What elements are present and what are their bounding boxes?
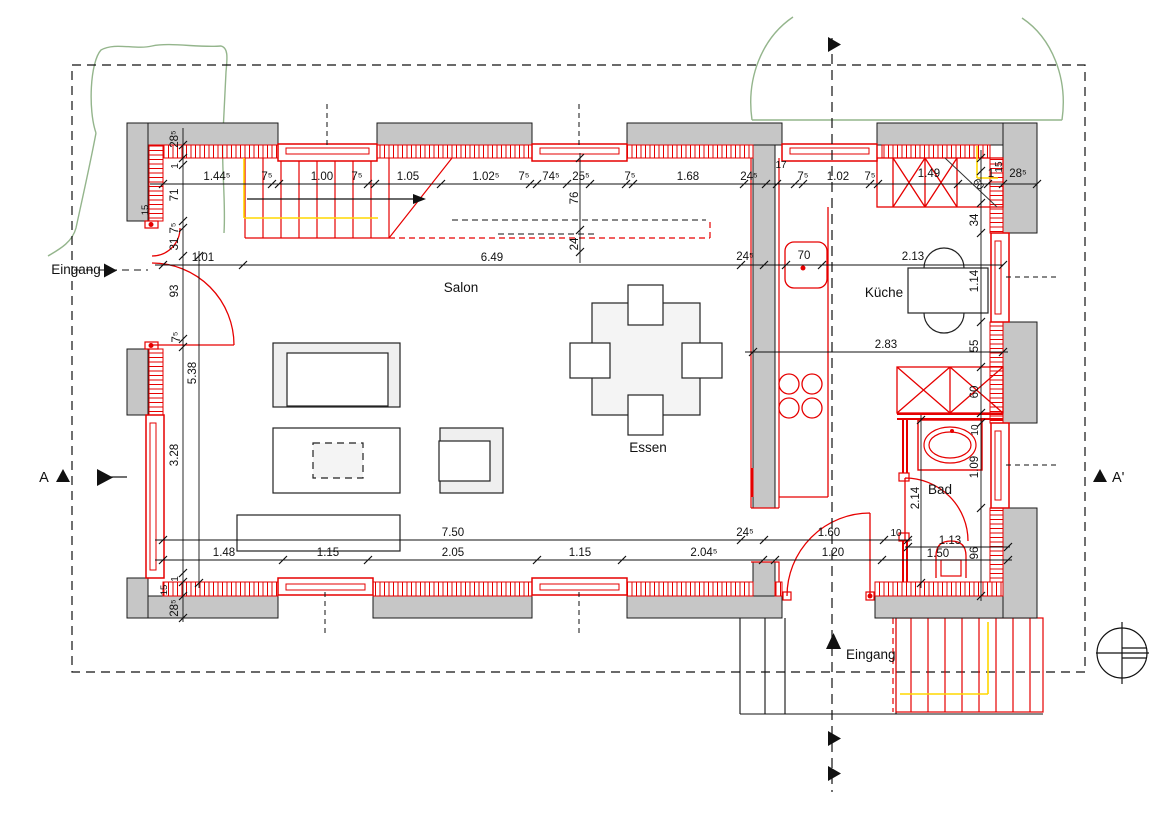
dimension-label: 24⁵: [736, 527, 754, 539]
dining-chair: [628, 285, 663, 325]
stair-handrail: [900, 622, 988, 694]
dimension-label: 1.13: [939, 535, 961, 547]
dimension-label: 76: [569, 192, 581, 205]
dimension-label: 7⁵: [261, 171, 272, 183]
dimension-label: 7⁵: [171, 331, 183, 342]
entrance-arrow-left: [104, 264, 117, 278]
dimension-label: 1.20: [822, 547, 844, 559]
canopy-arc: [751, 17, 1063, 120]
dimension-label: 6.49: [481, 252, 503, 264]
dimension-label: 31: [169, 238, 181, 251]
dimension-label: 1.15: [317, 547, 339, 559]
dimension-label: 1.05: [397, 171, 419, 183]
dimension-label: 1.44⁵: [203, 171, 230, 183]
section-label: A': [1112, 470, 1125, 486]
partition-pier: [753, 145, 775, 508]
dimension-label: 2.04⁵: [690, 547, 717, 559]
dimension-label: 60: [970, 177, 986, 193]
dimension-label: 17: [775, 160, 787, 171]
dimension-label: 34: [969, 213, 981, 226]
section-arrow-bottom: [828, 731, 841, 746]
dimension-label: 10: [890, 528, 902, 539]
room-label: Küche: [865, 285, 903, 300]
window: [782, 144, 877, 161]
dimension-label: 60: [969, 386, 981, 399]
dimension-label: 55: [969, 340, 981, 353]
dining-chair: [682, 343, 722, 378]
floor-plan-page: 1.44⁵7⁵1.007⁵1.051.02⁵7⁵74⁵25⁵7⁵1.6824⁵1…: [0, 0, 1169, 826]
dimension-label: 2.14: [910, 486, 922, 509]
dimension-label: 25⁵: [572, 171, 590, 183]
dimension-label: 2.13: [902, 251, 924, 263]
dimension-label: 10: [970, 424, 981, 436]
section-arrow-left: [97, 469, 113, 486]
staircase: [244, 158, 710, 238]
orientation-symbol: [1096, 622, 1149, 684]
section-arrow-top: [828, 37, 841, 52]
floor-plan-canvas: 1.44⁵7⁵1.007⁵1.051.02⁵7⁵74⁵25⁵7⁵1.6824⁵1…: [0, 0, 1169, 826]
dimension-label: 93: [169, 285, 181, 298]
entrance-label: Eingang: [846, 647, 896, 662]
dimension-label: 28⁵: [169, 130, 181, 148]
dimension-label: 24: [569, 237, 581, 250]
room-label: Bad: [928, 482, 952, 497]
window: [146, 415, 164, 578]
dimension-label: 71: [169, 189, 181, 202]
dimension-label: 1.68: [677, 171, 699, 183]
dimension-label: 1.00: [311, 171, 333, 183]
dining-chair: [628, 395, 663, 435]
dimension-label: 1.02⁵: [472, 171, 499, 183]
dimension-label: 70: [798, 250, 811, 262]
room-label: Salon: [444, 280, 479, 295]
dimension-label: 1.02: [827, 171, 849, 183]
section-label: A: [39, 470, 49, 486]
dimension-label: 2.83: [875, 339, 897, 351]
cooktop-burner: [802, 374, 822, 394]
dimension-label: 74⁵: [542, 171, 560, 183]
dimension-label: 7⁵: [169, 222, 181, 233]
dimension-label: 1.60: [818, 527, 840, 539]
dimension-label: 5.38: [187, 362, 199, 384]
window: [278, 144, 377, 161]
cooktop-burner: [779, 374, 799, 394]
dimension-label: 1.50: [927, 548, 949, 560]
dimension-label: 7⁵: [797, 171, 808, 183]
room-label: Essen: [629, 440, 667, 455]
dimension-label: 1.14: [969, 269, 981, 292]
dimension-label: 15: [140, 205, 151, 216]
cooktop-burner: [802, 398, 822, 418]
sideboard: [237, 515, 400, 551]
dimension-label: 1.09: [969, 456, 981, 478]
dimension-label: 15: [994, 161, 1005, 173]
cooktop-burner: [779, 398, 799, 418]
dimension-label: 24⁵: [740, 171, 758, 183]
exterior-steps: [740, 618, 1043, 714]
section-arrow-bottom: [828, 766, 841, 781]
salon-furniture: [237, 343, 503, 551]
dimension-label: 7.50: [442, 527, 464, 539]
dimension-label: 1.01: [192, 252, 214, 264]
hedge-outline: [91, 45, 227, 133]
dimension-label: 28⁵: [169, 599, 181, 617]
dining-chair: [570, 343, 610, 378]
dimension-label: 15: [159, 585, 170, 596]
dimension-label: 7⁵: [351, 171, 362, 183]
dimension-label: 1.48: [213, 547, 235, 559]
dimension-label: 1: [170, 163, 181, 169]
dimension-label: 28⁵: [1009, 168, 1027, 180]
entrance-label: Eingang: [51, 262, 101, 277]
section-a-triangle: [56, 469, 70, 482]
dimension-label: 96: [969, 547, 981, 560]
entrance-door-left: [145, 221, 234, 349]
dimension-label: 24⁵: [736, 251, 754, 263]
dimension-label: 7⁵: [518, 171, 529, 183]
dining-set: [570, 285, 722, 435]
dimension-label: 1.49: [918, 168, 940, 180]
stair-direction-arrow: [413, 194, 426, 204]
dimension-label: 2.05: [442, 547, 464, 559]
dimension-label: 7⁵: [864, 171, 875, 183]
door-jamb: [899, 473, 909, 481]
dimension-label: 1.15: [569, 547, 591, 559]
partition-pier-stub: [753, 562, 775, 596]
entrance-arrow-bottom: [826, 633, 841, 649]
section-a-prime-triangle: [1093, 469, 1107, 482]
dimension-label: 7⁵: [624, 171, 635, 183]
dimension-label: 1: [170, 576, 181, 582]
dimension-label: 3.28: [169, 444, 181, 466]
stair-handrail-line: [244, 158, 378, 218]
